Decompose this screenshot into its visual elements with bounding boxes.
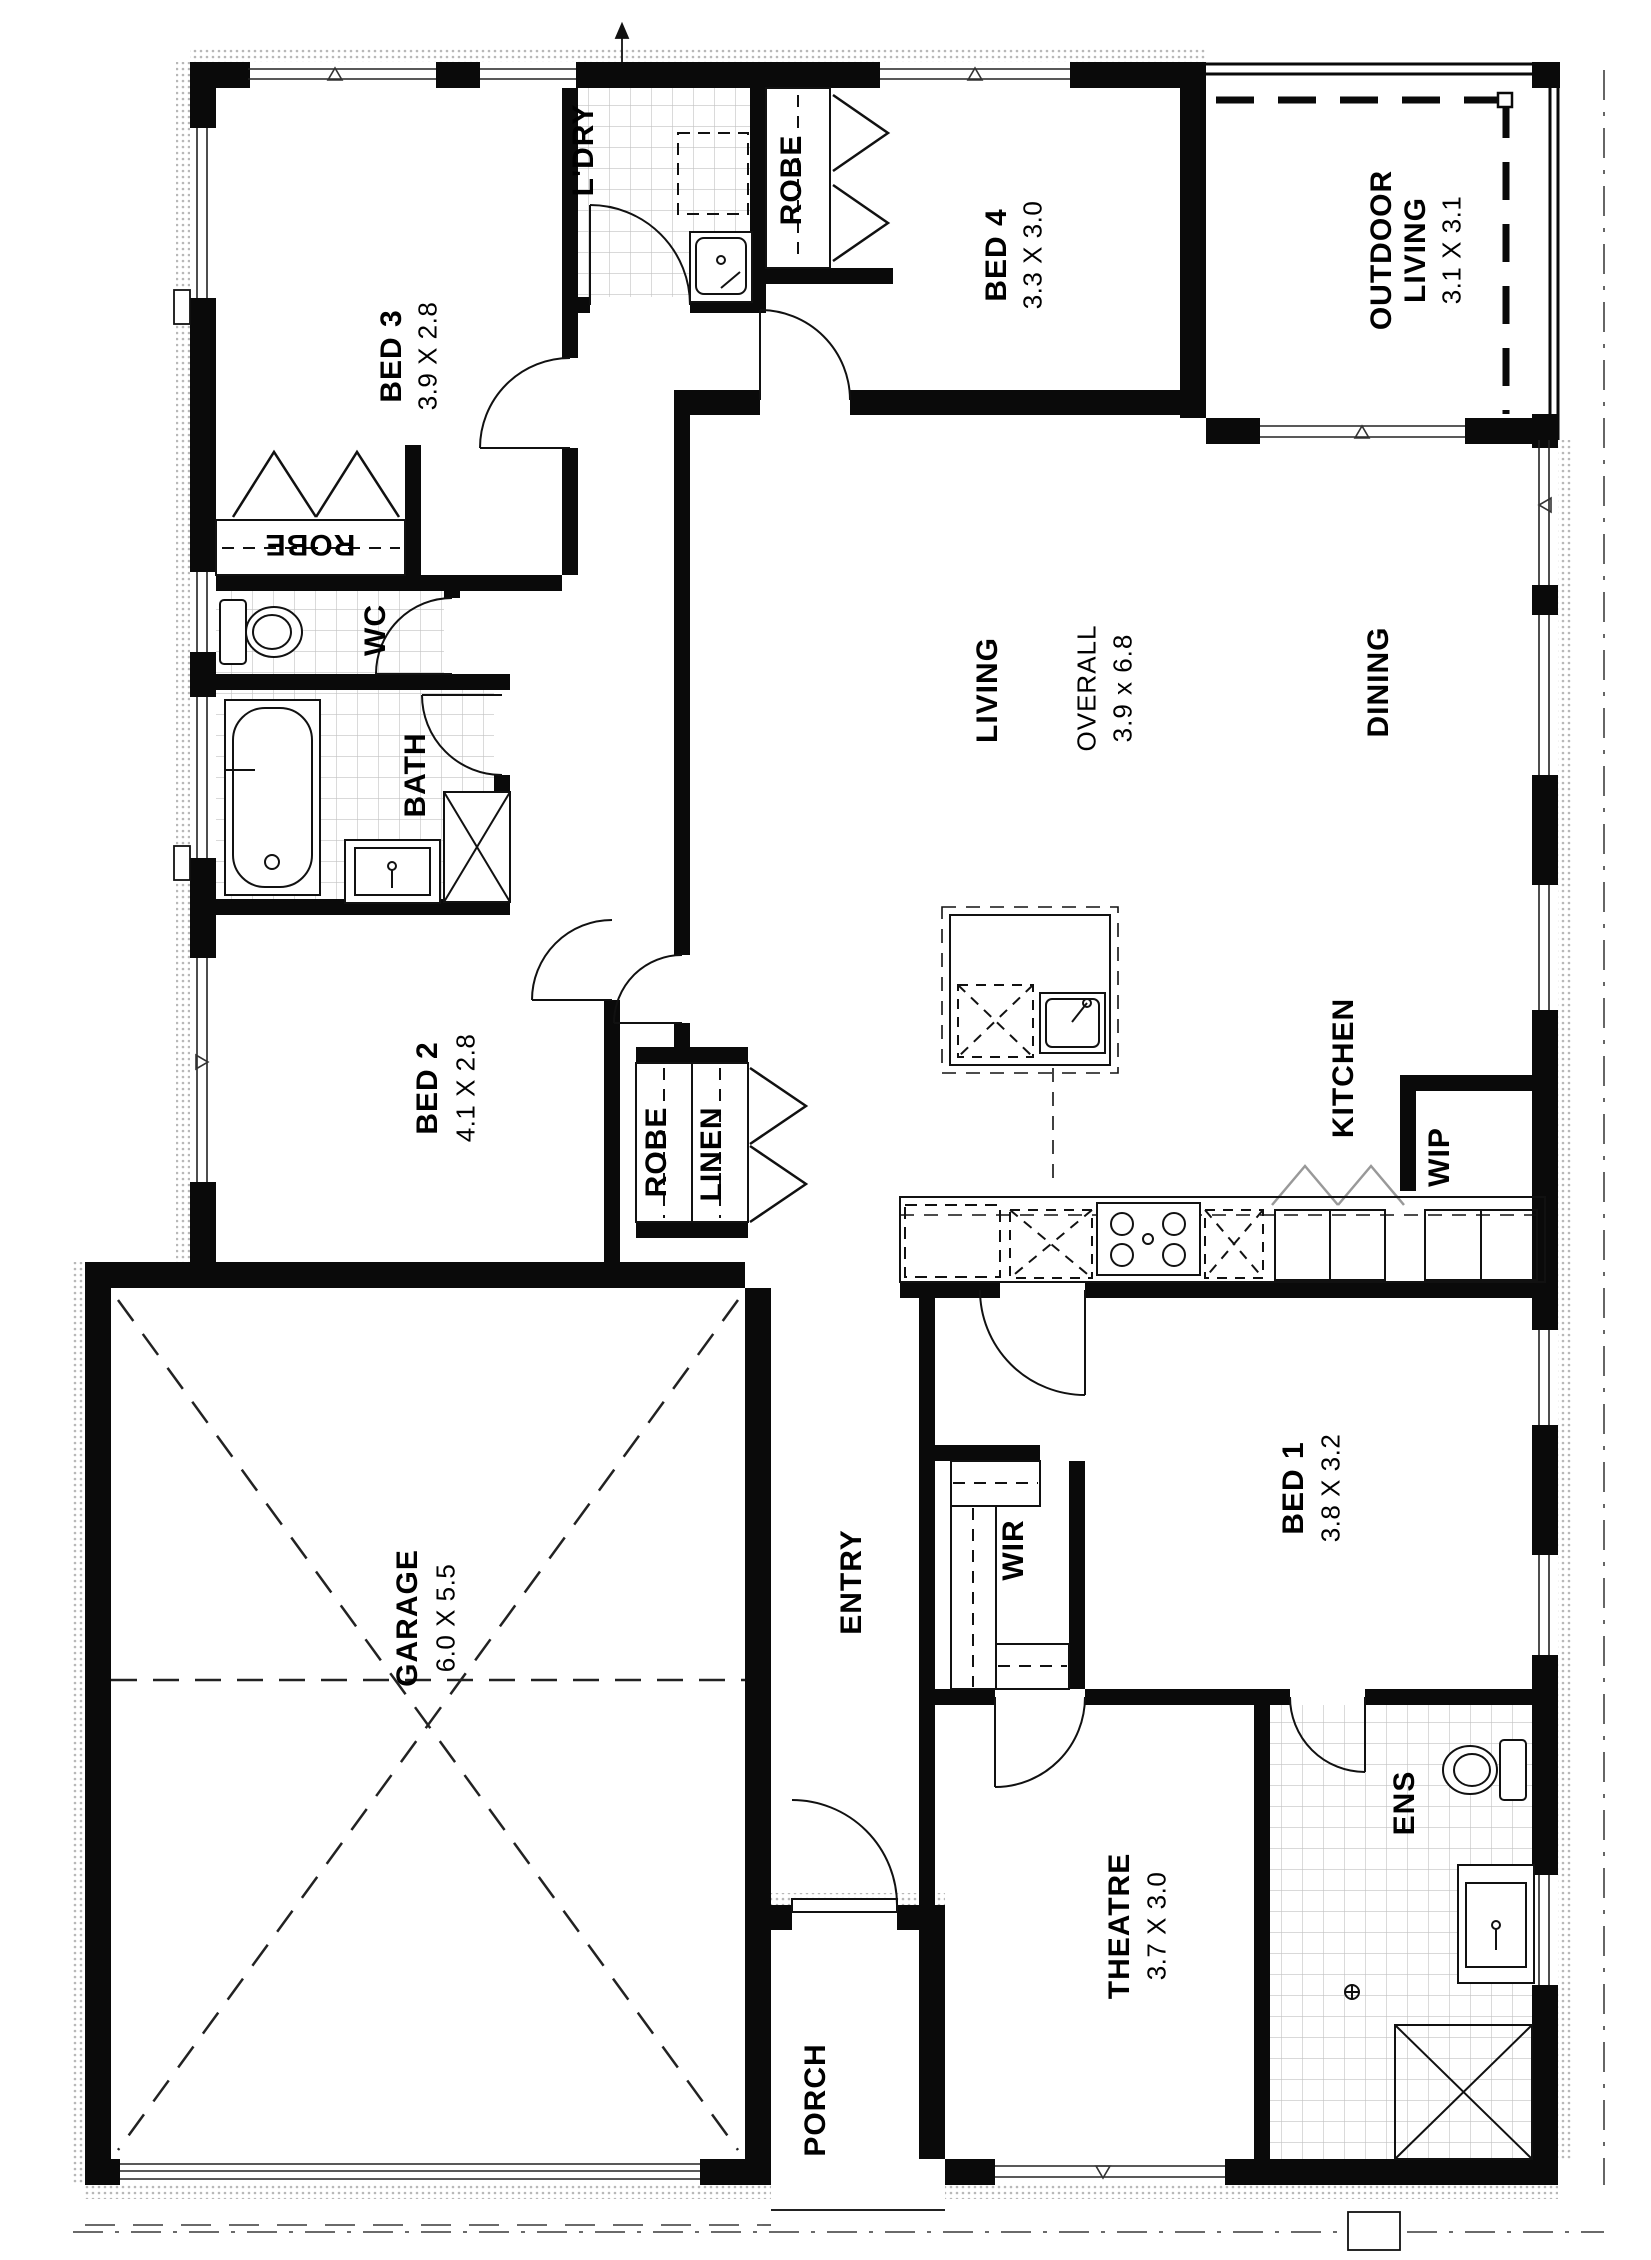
label-laundry: L'DRY [567,104,601,197]
robe-linen-bifold [750,1068,806,1144]
bed4-robe-bifold [833,95,888,171]
label-bed3-dims: 3.9 X 2.8 [413,302,444,411]
island-bench [942,907,1118,1073]
hall-living-door [614,955,682,1023]
garage-truss-lines [111,1300,745,2150]
cooktop [1097,1203,1200,1275]
label-bed1-dims: 3.8 X 3.2 [1316,1434,1347,1543]
ens-vanity [1458,1865,1534,1983]
label-living: LIVING [971,637,1005,743]
label-outdoor-living-dims: 3.1 X 3.1 [1437,196,1468,305]
label-entry: ENTRY [835,1529,869,1635]
label-dining: DINING [1362,627,1396,738]
label-wir: WIR [997,1519,1031,1580]
floor-plan-drawing [0,0,1651,2260]
label-outdoor-living-2: LIVING [1399,197,1433,303]
label-outdoor-living-1: OUTDOOR [1365,170,1399,330]
bench-dashed-unit-left [1010,1210,1092,1278]
label-overall-dims: 3.9 x 6.8 [1108,634,1139,743]
fridge-space [905,1205,1000,1277]
label-wip: WIP [1423,1127,1457,1187]
label-theatre: THEATRE [1103,1853,1137,1999]
bath-vanity [345,840,440,903]
kitchen-fixtures [900,907,1545,1282]
label-bed1: BED 1 [1277,1441,1311,1534]
outdoor-living-post [1498,93,1512,107]
label-bed2-dims: 4.1 X 2.8 [451,1034,482,1143]
label-robe-bed2: ROBE [640,1107,674,1198]
label-bath: BATH [399,732,433,817]
label-garage: GARAGE [391,1549,425,1687]
laundry-tub [690,232,752,302]
meter-box [174,290,190,324]
theatre-door [995,1697,1085,1787]
label-theatre-dims: 3.7 X 3.0 [1142,1872,1173,1981]
label-linen: LINEN [695,1107,729,1202]
label-garage-dims: 6.0 X 5.5 [431,1564,462,1673]
bed4-door [760,310,850,400]
label-bed2: BED 2 [411,1041,445,1134]
bath-shower [444,792,510,902]
bed3-robe-bifold [233,452,316,517]
floor-plan: BED 3 3.9 X 2.8 L'DRY ROBE BED 4 3.3 X 3… [0,0,1651,2260]
label-overall: OVERALL [1072,625,1103,752]
label-robe-bed4: ROBE [775,135,809,226]
pantry-bifold-gray [1272,1166,1404,1205]
service-nib [1348,2212,1400,2250]
ens-toilet [1443,1740,1526,1800]
bathtub [225,700,320,895]
label-bed4-dims: 3.3 X 3.0 [1018,201,1049,310]
bed2-door [532,920,612,1000]
meter-box [174,846,190,880]
bench-dashed-unit-right [1205,1210,1263,1278]
pantry-shelves [1275,1210,1537,1280]
label-bed4: BED 4 [980,208,1014,301]
suite-door [980,1290,1085,1395]
label-kitchen: KITCHEN [1327,998,1361,1138]
label-ens: ENS [1388,1771,1422,1836]
bed3-door [480,358,570,448]
floor-waste [1345,1985,1359,1999]
doors [376,205,1365,1912]
label-wc: WC [359,604,393,656]
label-robe-bed3: ROBE [265,527,356,561]
label-porch: PORCH [799,2043,833,2156]
label-bed3: BED 3 [375,309,409,402]
